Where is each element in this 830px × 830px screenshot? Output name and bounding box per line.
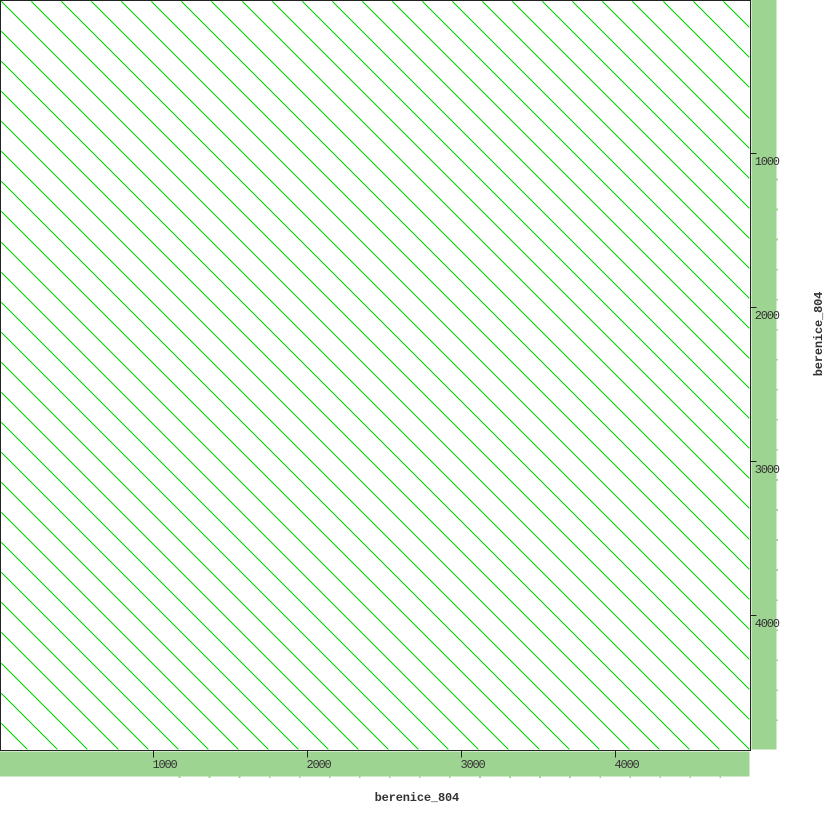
svg-text:4000: 4000 — [755, 617, 780, 631]
svg-text:2000: 2000 — [307, 758, 332, 772]
svg-text:1000: 1000 — [755, 155, 780, 169]
svg-text:berenice_804: berenice_804 — [812, 292, 826, 377]
svg-text:1000: 1000 — [153, 758, 178, 772]
svg-text:3000: 3000 — [461, 758, 486, 772]
svg-text:2000: 2000 — [755, 309, 780, 323]
svg-text:4000: 4000 — [615, 758, 640, 772]
svg-text:berenice_804: berenice_804 — [375, 791, 460, 805]
svg-text:3000: 3000 — [755, 463, 780, 477]
